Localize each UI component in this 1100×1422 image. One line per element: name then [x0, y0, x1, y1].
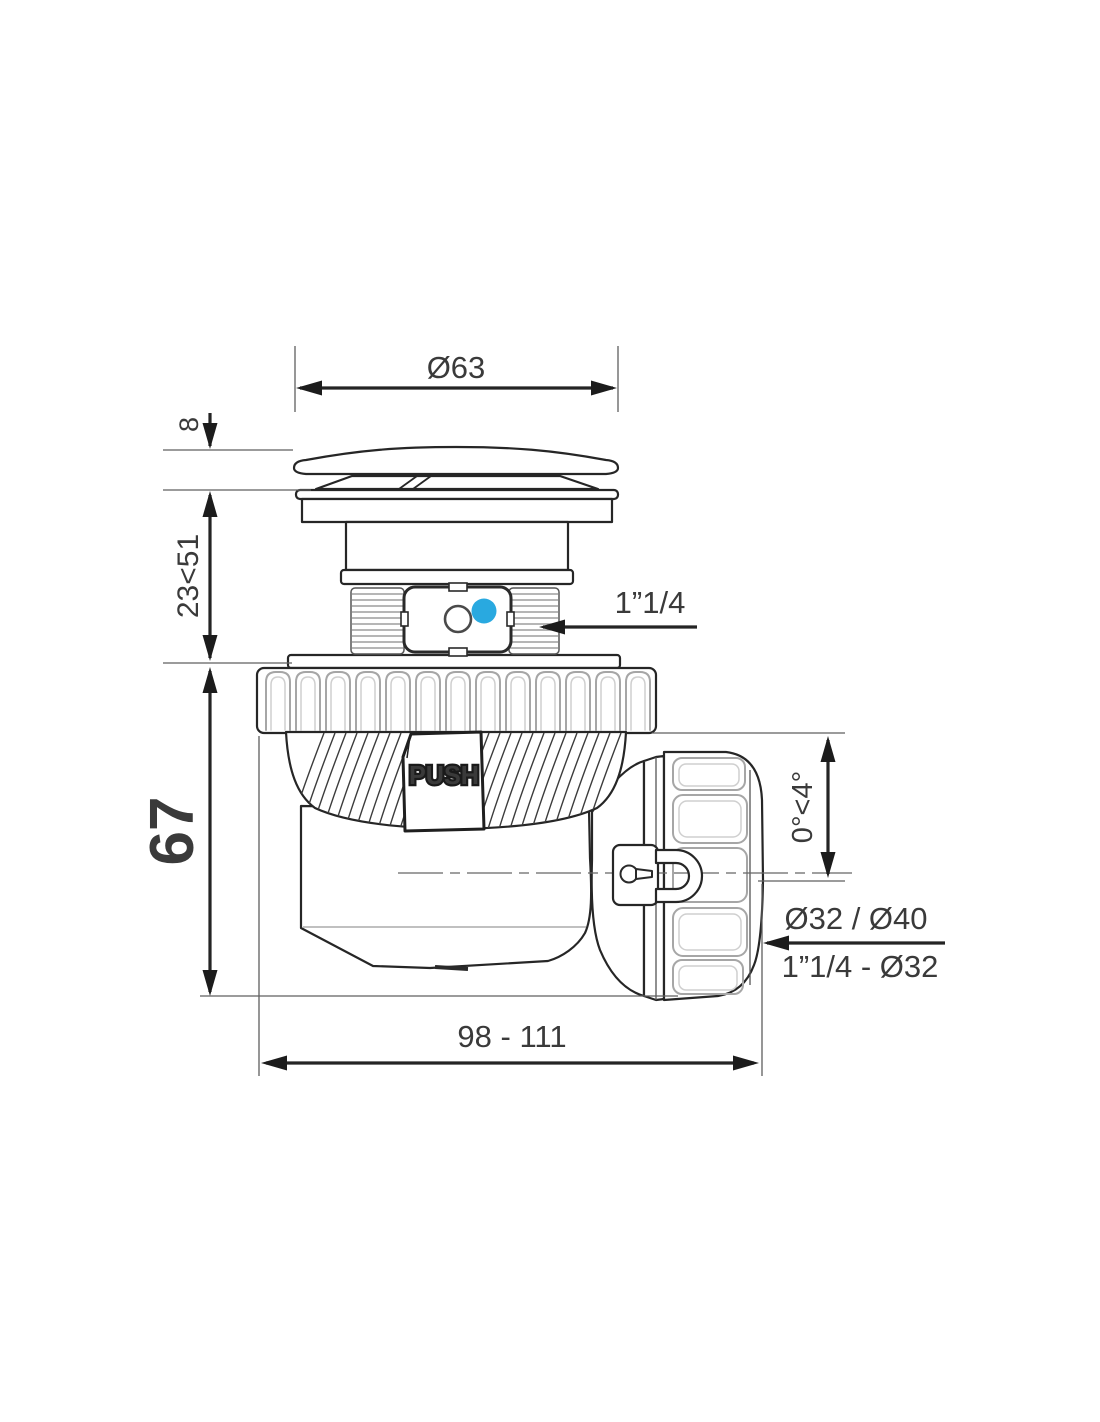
dim-height-adjust: 23<51	[163, 491, 292, 663]
plate-blue-dot	[472, 599, 497, 624]
outlet-nut	[664, 752, 763, 1000]
dim-outlet-reduction-label: 1”1/4 - Ø32	[782, 949, 939, 984]
body-nut	[257, 655, 656, 733]
dim-overall-length-label: 98 - 111	[457, 1019, 566, 1054]
dim-outlet-angle-label: 0°<4°	[787, 771, 819, 843]
keyhole-tab	[613, 845, 658, 905]
push-tab: PUSH	[403, 732, 484, 831]
dim-inlet-thread: 1”1/4	[539, 585, 697, 635]
dim-outlet-sizes: Ø32 / Ø40 1”1/4 - Ø32	[762, 884, 945, 1076]
dim-cap-diameter-label: Ø63	[427, 350, 486, 385]
keyhole-icon	[621, 866, 638, 883]
cap-cylinder	[346, 522, 568, 570]
dim-cap-diameter: Ø63	[295, 346, 618, 412]
dim-cap-height-label: 8	[174, 417, 204, 432]
marking-plate	[401, 583, 514, 656]
dim-body-height-label: 67	[138, 797, 207, 866]
dim-height-adjust-label: 23<51	[172, 534, 205, 618]
cap-ring	[341, 570, 573, 584]
cap-assembly	[294, 447, 618, 584]
cap-skirt	[316, 476, 598, 489]
push-label: PUSH	[409, 760, 479, 790]
dim-inlet-thread-label: 1”1/4	[615, 585, 686, 620]
technical-drawing-page: PUSH	[0, 0, 1100, 1422]
cap-dome	[294, 447, 618, 474]
plate-white-dot	[445, 606, 471, 632]
waste-trap-drawing: PUSH	[0, 0, 1100, 1422]
dim-cap-height: 8	[163, 413, 311, 490]
dim-outlet-sizes-label: Ø32 / Ø40	[784, 901, 927, 936]
cap-flange	[296, 490, 618, 522]
threaded-inlet	[351, 583, 559, 656]
